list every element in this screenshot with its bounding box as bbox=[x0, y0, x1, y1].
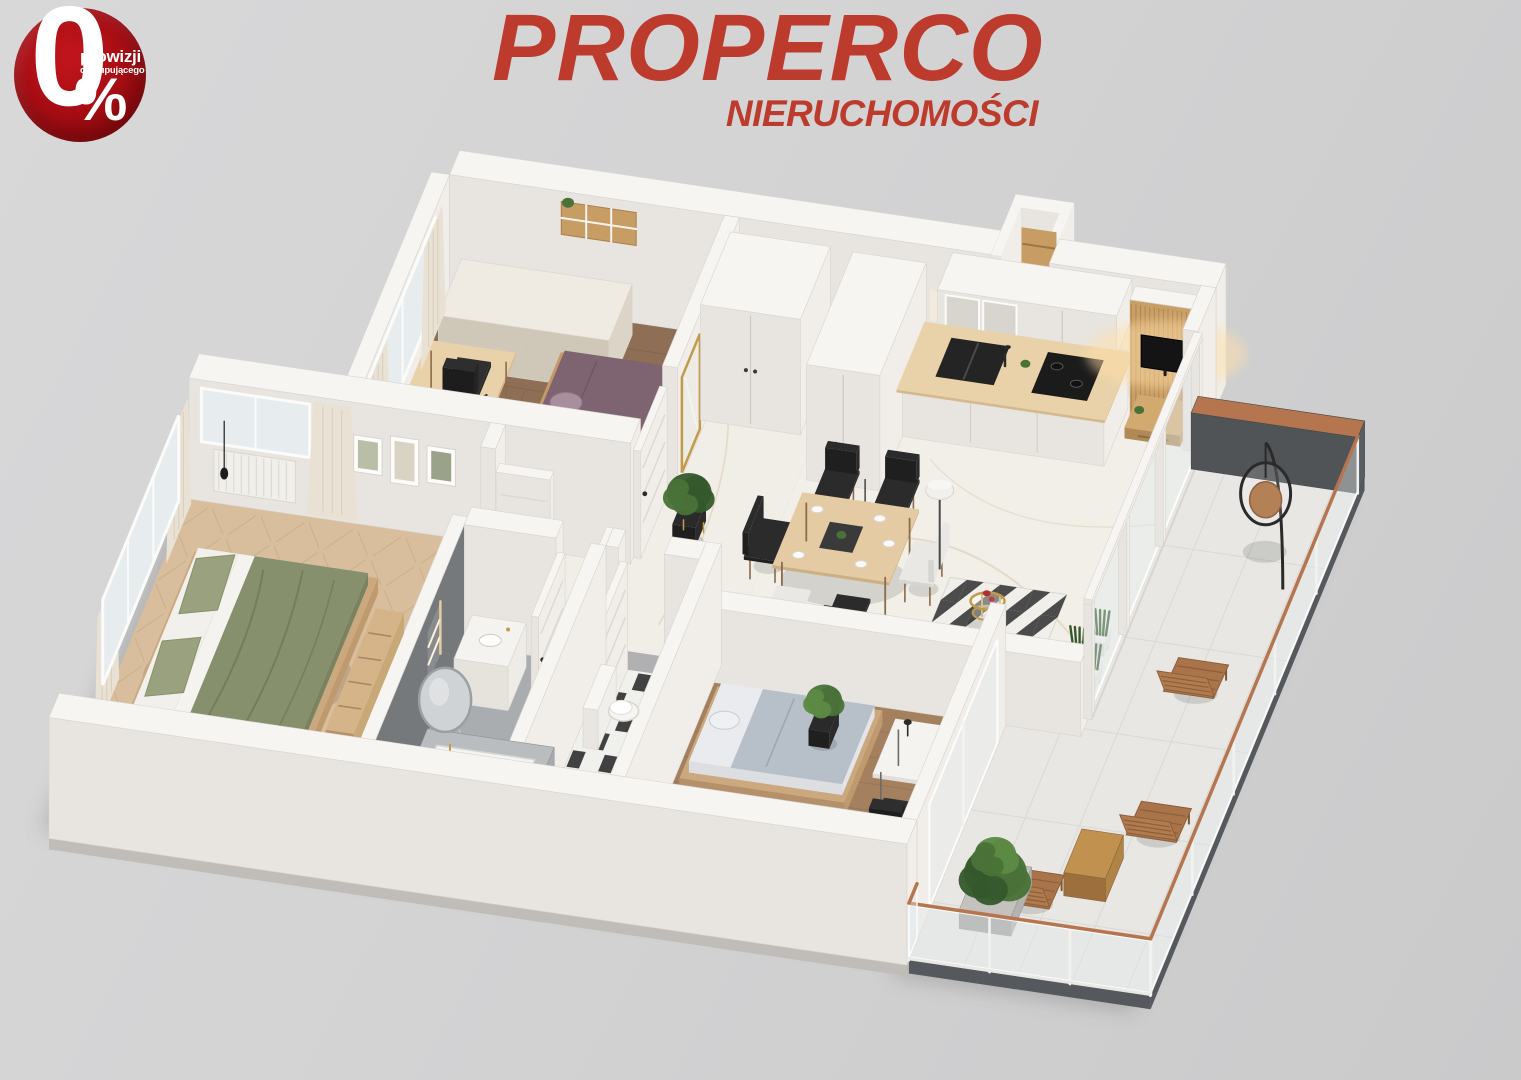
badge-line1: prowizji bbox=[80, 48, 141, 65]
zero-commission-badge: 0 % prowizji od kupującego bbox=[14, 8, 146, 142]
logo-name: PROPERCO bbox=[492, 0, 1040, 97]
floor-plan-render bbox=[0, 0, 1521, 1080]
floor-plan-poster: 0 % prowizji od kupującego PROPERCO NIER… bbox=[0, 0, 1521, 1080]
round-mirror bbox=[419, 668, 471, 732]
badge-line2: od kupującego bbox=[80, 66, 144, 76]
properco-logo: PROPERCO NIERUCHOMOŚCI bbox=[492, 0, 1040, 135]
badge-percent-sign: % bbox=[74, 70, 127, 130]
